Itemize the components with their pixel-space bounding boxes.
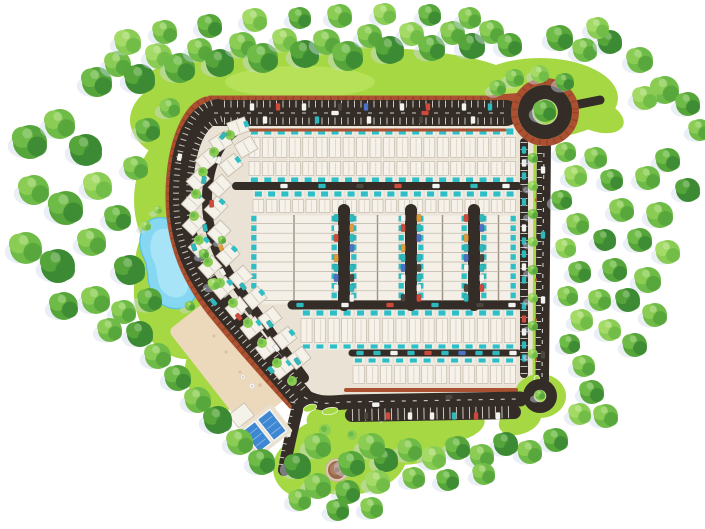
- grass-verge: [534, 140, 535, 378]
- tree-highlight: [531, 210, 534, 213]
- tree-highlight: [22, 128, 32, 138]
- tree-highlight: [292, 456, 300, 464]
- tree-highlight: [143, 120, 150, 127]
- car: [263, 116, 268, 124]
- car: [476, 303, 484, 308]
- tree-highlight: [494, 82, 499, 87]
- pool: [368, 358, 376, 363]
- pool: [452, 310, 460, 316]
- pool: [511, 273, 516, 279]
- tree-lobe: [554, 436, 568, 450]
- car: [421, 111, 429, 116]
- pool: [427, 191, 435, 197]
- pool: [439, 177, 447, 183]
- tree-highlight: [156, 207, 158, 209]
- tree-highlight: [92, 175, 100, 183]
- tree-lobe: [470, 42, 485, 57]
- tree-lobe: [176, 374, 191, 389]
- tree-lobe: [666, 248, 680, 262]
- tree-highlight: [663, 150, 670, 157]
- pool: [357, 344, 365, 349]
- tree-lobe: [686, 100, 700, 114]
- tree-lobe: [568, 341, 580, 353]
- car: [541, 166, 546, 174]
- car: [315, 116, 320, 124]
- car: [464, 214, 469, 222]
- pool: [440, 191, 448, 197]
- tree-lobe: [578, 410, 591, 423]
- pool: [506, 344, 513, 349]
- car: [522, 198, 527, 206]
- pool: [511, 225, 516, 231]
- tree-lobe: [27, 137, 47, 157]
- pool: [399, 235, 404, 241]
- tree-highlight: [105, 320, 112, 327]
- palm-center: [205, 259, 210, 264]
- tree-highlight: [635, 230, 642, 237]
- tree-lobe: [658, 211, 673, 226]
- tree-highlight: [195, 40, 202, 47]
- tree-lobe: [539, 393, 545, 399]
- car: [407, 351, 415, 356]
- tree-lobe: [83, 145, 102, 164]
- tree-highlight: [448, 23, 455, 30]
- car: [492, 351, 500, 356]
- tree-lobe: [208, 22, 222, 36]
- tree-highlight: [477, 446, 484, 453]
- tree-highlight: [188, 302, 191, 305]
- car: [522, 172, 527, 180]
- car: [470, 184, 478, 189]
- tree-lobe: [603, 236, 616, 249]
- pool: [478, 358, 486, 363]
- tree-lobe: [338, 12, 352, 26]
- tree-lobe: [539, 71, 549, 81]
- car: [464, 284, 469, 292]
- tree-highlight: [58, 194, 68, 204]
- tree-lobe: [578, 268, 591, 281]
- tree-highlight: [630, 335, 637, 342]
- car: [350, 274, 355, 282]
- tree-highlight: [119, 302, 126, 309]
- car: [464, 264, 469, 272]
- tree-lobe: [638, 56, 653, 71]
- car: [417, 264, 422, 272]
- tree-lobe: [514, 75, 524, 85]
- tree-lobe: [178, 63, 195, 80]
- car: [417, 274, 422, 282]
- tree-highlight: [425, 6, 432, 13]
- tree-lobe: [504, 440, 518, 454]
- tree-highlight: [90, 70, 99, 79]
- pool: [387, 191, 395, 197]
- car: [541, 351, 546, 359]
- car: [209, 200, 214, 208]
- car: [373, 351, 381, 356]
- pool: [511, 254, 516, 260]
- tree-lobe: [430, 44, 445, 59]
- tree-lobe: [346, 51, 363, 68]
- tree-highlight: [234, 432, 242, 440]
- tree-lobe: [596, 24, 609, 37]
- tree-highlight: [591, 149, 598, 156]
- tree-lobe: [296, 462, 311, 477]
- tree-highlight: [220, 237, 222, 239]
- tree-highlight: [211, 279, 215, 283]
- pool: [264, 177, 272, 183]
- pool: [347, 191, 355, 197]
- pool: [281, 191, 289, 197]
- tree-highlight: [152, 346, 160, 354]
- tree-highlight: [250, 10, 257, 17]
- pool: [425, 177, 433, 183]
- tree-highlight: [575, 405, 582, 412]
- tree-highlight: [593, 19, 600, 26]
- pool: [506, 310, 513, 316]
- tree-highlight: [466, 36, 474, 44]
- car: [464, 234, 469, 242]
- tree-lobe: [590, 388, 604, 402]
- car: [508, 303, 516, 308]
- tree-lobe: [23, 243, 42, 262]
- tree-highlight: [429, 448, 436, 455]
- tree-highlight: [617, 200, 624, 207]
- car: [522, 276, 527, 284]
- tree-lobe: [532, 240, 538, 246]
- tree-lobe: [532, 352, 538, 358]
- car: [296, 303, 304, 308]
- lawn-patch: [225, 66, 375, 98]
- tree-highlight: [335, 6, 342, 13]
- pool: [361, 191, 369, 197]
- pool: [374, 191, 382, 197]
- tree-highlight: [373, 472, 380, 479]
- pool: [506, 358, 513, 363]
- car: [401, 224, 406, 232]
- tree-highlight: [365, 26, 372, 33]
- pool: [303, 310, 311, 316]
- pool: [372, 177, 380, 183]
- tree-highlight: [601, 406, 608, 413]
- car: [426, 103, 431, 111]
- car: [201, 176, 207, 184]
- tree-highlight: [134, 324, 142, 332]
- pool: [465, 358, 473, 363]
- house-row-base: [248, 160, 517, 177]
- palm-center: [211, 149, 216, 154]
- tree-highlight: [384, 39, 392, 47]
- palm-center: [274, 360, 279, 365]
- pool: [251, 216, 256, 222]
- tree-lobe: [253, 16, 267, 30]
- pool: [462, 273, 467, 279]
- pool: [467, 191, 475, 197]
- tree-highlight: [166, 100, 172, 106]
- tree-lobe: [532, 156, 538, 162]
- tree-highlight: [465, 9, 472, 16]
- pool: [438, 344, 446, 349]
- pool: [506, 128, 514, 135]
- tree-highlight: [659, 79, 667, 87]
- pool: [511, 283, 516, 289]
- tree-highlight: [562, 144, 568, 150]
- tree-highlight: [654, 205, 662, 213]
- pool: [418, 245, 423, 251]
- car: [417, 254, 422, 262]
- tree-highlight: [19, 235, 29, 245]
- tree-lobe: [32, 185, 49, 202]
- tree-lobe: [134, 164, 148, 178]
- car: [401, 254, 406, 262]
- tree-lobe: [122, 308, 136, 322]
- car: [496, 412, 501, 420]
- tree-lobe: [90, 238, 106, 254]
- tree-lobe: [428, 11, 441, 24]
- tree-highlight: [634, 50, 642, 58]
- pool: [382, 358, 390, 363]
- car: [386, 303, 394, 308]
- tree-highlight: [409, 469, 416, 476]
- car: [471, 116, 476, 124]
- tree-lobe: [610, 176, 623, 189]
- car: [280, 184, 288, 189]
- pool: [511, 235, 516, 241]
- tree-lobe: [646, 174, 660, 188]
- tree-lobe: [126, 38, 141, 53]
- car: [364, 412, 369, 420]
- tree-highlight: [564, 288, 570, 294]
- car: [401, 244, 406, 252]
- tree-lobe: [532, 268, 538, 274]
- car: [350, 294, 355, 302]
- pool: [506, 177, 514, 183]
- car: [367, 116, 372, 124]
- tree-highlight: [453, 438, 460, 445]
- car: [509, 351, 517, 356]
- tree-lobe: [574, 172, 587, 185]
- pool: [345, 177, 353, 183]
- tree-lobe: [528, 448, 542, 462]
- tree-highlight: [558, 192, 564, 198]
- tree-highlight: [58, 295, 66, 303]
- pool: [316, 344, 324, 349]
- car: [401, 294, 406, 302]
- car: [390, 351, 398, 356]
- car: [480, 284, 485, 292]
- pool: [385, 177, 393, 183]
- pool: [479, 177, 487, 183]
- tree-highlight: [566, 336, 572, 342]
- pool: [511, 216, 516, 222]
- tree-highlight: [579, 357, 586, 364]
- car: [338, 103, 343, 111]
- pool: [355, 358, 363, 363]
- tree-lobe: [203, 252, 209, 258]
- tree-lobe: [157, 209, 162, 214]
- car: [522, 341, 527, 349]
- car: [424, 351, 432, 356]
- tree-lobe: [643, 94, 657, 108]
- pool: [479, 310, 487, 316]
- pool: [399, 177, 407, 183]
- tree-lobe: [316, 482, 331, 497]
- pool: [453, 191, 461, 197]
- car: [350, 264, 355, 272]
- car: [334, 284, 339, 292]
- tree-lobe: [145, 224, 151, 230]
- car: [350, 234, 355, 242]
- tree-highlight: [531, 238, 534, 241]
- pool: [330, 344, 338, 349]
- tree-highlight: [202, 250, 205, 253]
- pool: [351, 254, 356, 260]
- tree-highlight: [86, 231, 94, 239]
- car: [488, 103, 493, 111]
- tree-highlight: [346, 454, 354, 462]
- tree-lobe: [532, 184, 538, 190]
- tree-lobe: [163, 28, 177, 42]
- tree-highlight: [695, 121, 702, 128]
- pool: [411, 310, 419, 316]
- tree-highlight: [531, 294, 534, 297]
- tree-lobe: [128, 265, 145, 282]
- car: [302, 103, 307, 111]
- tree-highlight: [551, 430, 558, 437]
- car: [522, 224, 527, 232]
- tree-lobe: [482, 470, 495, 483]
- pool: [438, 310, 446, 316]
- car: [417, 294, 422, 302]
- car: [419, 116, 424, 124]
- car: [350, 244, 355, 252]
- tree-lobe: [638, 236, 652, 250]
- car: [350, 284, 355, 292]
- sand-speckle: [224, 350, 227, 353]
- pool: [398, 344, 406, 349]
- tree-lobe: [598, 296, 611, 309]
- pool: [343, 344, 351, 349]
- pool: [251, 225, 256, 231]
- tree-lobe: [582, 362, 595, 375]
- tree-lobe: [94, 296, 110, 312]
- house-row-base: [248, 136, 517, 159]
- tree-lobe: [543, 107, 556, 120]
- car: [522, 315, 527, 323]
- tree-highlight: [554, 28, 562, 36]
- tree-highlight: [577, 311, 584, 318]
- tree-lobe: [626, 296, 640, 310]
- car: [541, 231, 546, 239]
- car: [331, 111, 339, 116]
- pool: [251, 264, 256, 270]
- tree-highlight: [595, 291, 602, 298]
- verge-marker: [535, 199, 537, 202]
- car: [441, 351, 449, 356]
- pool: [465, 310, 473, 316]
- tree-lobe: [576, 220, 589, 233]
- pool: [291, 177, 299, 183]
- tree-highlight: [172, 368, 180, 376]
- car: [350, 224, 355, 232]
- tree-lobe: [497, 85, 506, 94]
- tree-highlight: [366, 436, 374, 444]
- tree-lobe: [686, 186, 700, 200]
- tree-lobe: [350, 460, 365, 475]
- pool: [334, 191, 342, 197]
- tree-highlight: [571, 167, 578, 174]
- tree-lobe: [168, 105, 180, 117]
- palm-center: [349, 432, 354, 437]
- tree-lobe: [532, 324, 538, 330]
- pool: [511, 293, 516, 299]
- tree-highlight: [531, 350, 534, 353]
- tree-highlight: [312, 436, 320, 444]
- tree-highlight: [50, 252, 60, 262]
- tree-lobe: [620, 206, 634, 220]
- car: [417, 234, 422, 242]
- master-plan-svg: [0, 0, 705, 529]
- pool: [506, 191, 513, 197]
- car: [475, 351, 483, 356]
- tree-lobe: [138, 74, 155, 91]
- pool: [278, 177, 286, 183]
- tree-highlight: [587, 382, 594, 389]
- pool: [493, 177, 501, 183]
- tree-highlight: [256, 46, 265, 55]
- car: [430, 412, 435, 420]
- tree-lobe: [376, 478, 390, 492]
- tree-highlight: [479, 465, 486, 472]
- tree-lobe: [633, 341, 647, 355]
- tree-lobe: [156, 352, 171, 367]
- car: [401, 264, 406, 272]
- pool: [251, 177, 259, 183]
- tree-lobe: [63, 203, 83, 223]
- pool: [462, 225, 467, 231]
- car: [350, 214, 355, 222]
- tree-lobe: [148, 296, 162, 310]
- tree-highlight: [531, 182, 534, 185]
- pool: [492, 310, 500, 316]
- car: [372, 402, 380, 407]
- tree-highlight: [123, 258, 132, 267]
- tree-highlight: [192, 390, 200, 398]
- tree-highlight: [144, 222, 147, 225]
- pool: [316, 310, 324, 316]
- tree-highlight: [640, 88, 647, 95]
- tree-lobe: [613, 266, 627, 280]
- tree-lobe: [666, 156, 680, 170]
- palm-center: [259, 340, 264, 345]
- tree-lobe: [532, 296, 538, 302]
- pool: [425, 310, 433, 316]
- pool: [465, 344, 473, 349]
- tree-lobe: [594, 154, 607, 167]
- pool: [414, 191, 422, 197]
- tree-highlight: [573, 215, 580, 222]
- tree-lobe: [384, 456, 398, 470]
- tree-lobe: [238, 438, 253, 453]
- car: [480, 224, 485, 232]
- car: [364, 103, 369, 111]
- tree-highlight: [426, 38, 434, 46]
- car: [480, 214, 485, 222]
- car: [408, 412, 413, 420]
- tree-highlight: [145, 290, 152, 297]
- tree-lobe: [388, 46, 404, 62]
- pool: [294, 191, 302, 197]
- tree-highlight: [295, 9, 302, 16]
